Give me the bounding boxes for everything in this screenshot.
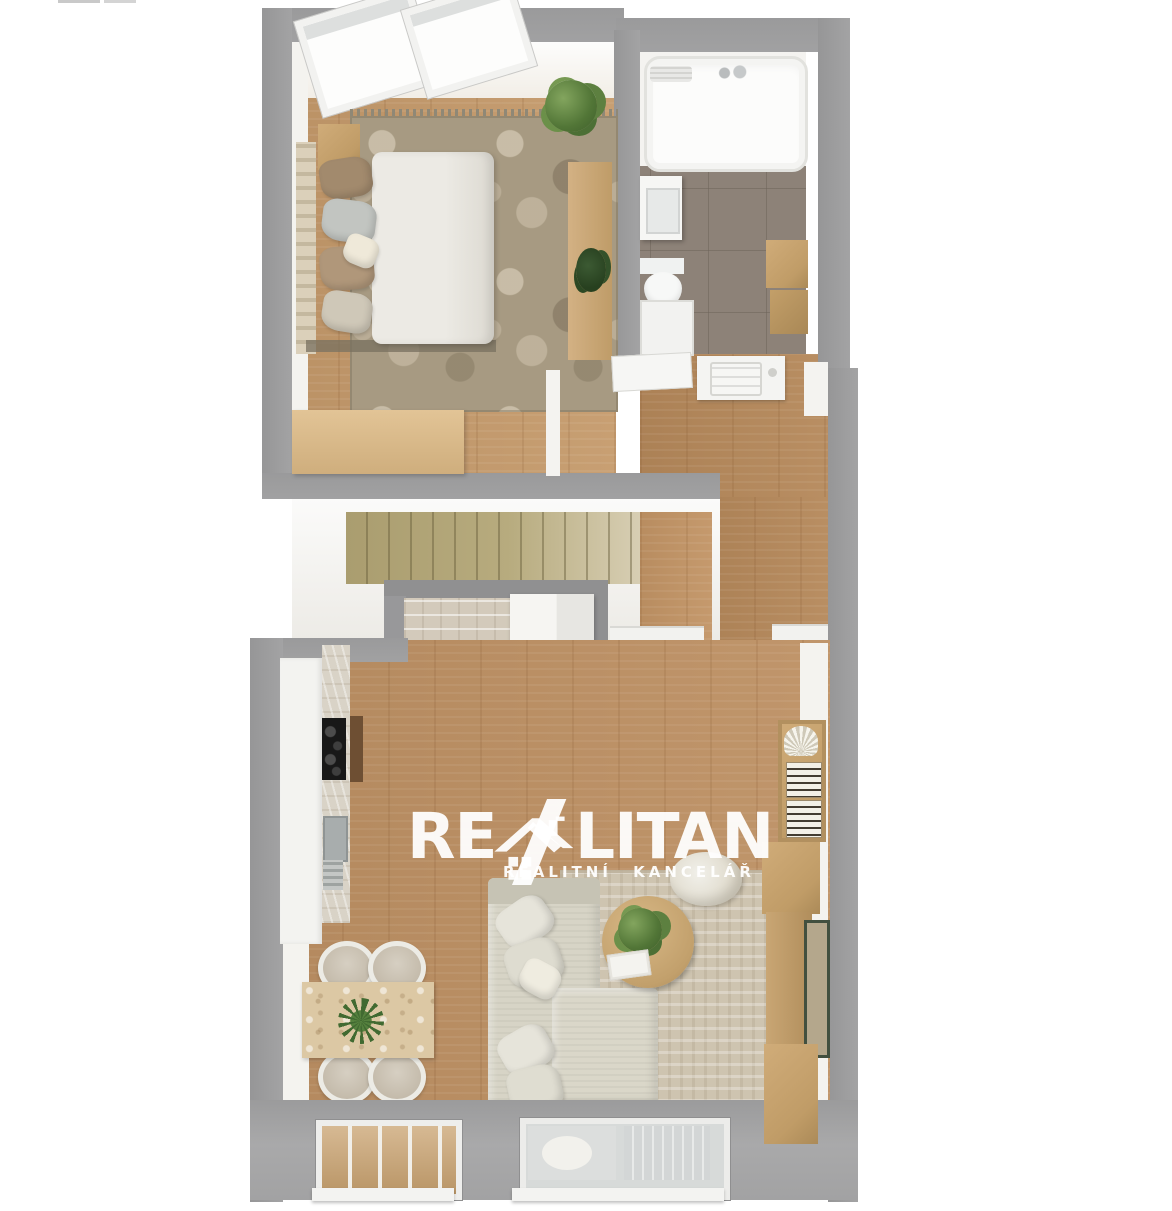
bathtub-faucet xyxy=(716,62,750,84)
bathroom-cabinet xyxy=(770,290,808,334)
wall-bedroom-stairhall xyxy=(262,473,720,499)
roof-skylight-right-pane xyxy=(624,1126,710,1180)
dining-chair xyxy=(368,1050,426,1104)
bedroom-plant xyxy=(545,80,597,132)
watermark-tagline: REALITNÍ KANCELÁŘ xyxy=(503,863,755,881)
picture-frame xyxy=(804,920,830,1058)
left-wall-upper xyxy=(262,8,292,497)
desk-plant xyxy=(576,248,606,292)
staircase xyxy=(346,512,640,584)
washing-machine-knob xyxy=(768,368,777,377)
bathtub-tray xyxy=(650,66,692,82)
bookshelf-fan xyxy=(784,726,818,756)
bookshelf-books xyxy=(786,762,822,798)
kitchen-counter xyxy=(280,658,322,944)
stair-landing xyxy=(640,512,712,640)
washbasin-bowl xyxy=(646,188,680,234)
bathroom-cabinet xyxy=(766,240,808,288)
cooktop xyxy=(322,718,346,780)
bedroom-door-jamb xyxy=(546,370,560,476)
skylight-view-sofa xyxy=(542,1136,592,1170)
bookshelf-books xyxy=(786,800,822,838)
kitchen-sink xyxy=(323,816,348,862)
right-wall-lower xyxy=(828,368,858,1202)
washing-machine-lid xyxy=(710,362,762,396)
tv-cabinet-bottom xyxy=(764,1044,818,1144)
bed-headboard xyxy=(296,142,316,354)
bed-duvet xyxy=(372,152,494,344)
page-artifact-dash xyxy=(104,0,136,3)
dish-drainer xyxy=(323,860,343,890)
right-wall-notch xyxy=(804,362,828,416)
watermark: RE LITAN REALITNÍ KANCELÁŘ xyxy=(407,799,787,891)
watermark-text-litan: LITAN xyxy=(575,811,773,863)
hall-door-leaf xyxy=(611,352,693,392)
dining-table-plant xyxy=(338,998,384,1044)
sofa-chaise xyxy=(552,988,658,1106)
page-artifact-dash xyxy=(58,0,100,3)
roof-skylight-left-sill xyxy=(312,1188,454,1201)
right-wall-bathroom xyxy=(818,18,850,372)
top-wall-bathroom xyxy=(616,18,828,52)
roof-skylight-right-sill xyxy=(512,1188,724,1201)
bathroom-washing-machine xyxy=(640,300,694,356)
bedroom-sideboard xyxy=(292,410,464,474)
coffee-table-plant xyxy=(618,908,662,952)
counter-dark-section xyxy=(350,716,363,782)
watermark-text-re: RE xyxy=(407,811,497,863)
floorplan-render: RE LITAN REALITNÍ KANCELÁŘ xyxy=(0,0,1172,1211)
